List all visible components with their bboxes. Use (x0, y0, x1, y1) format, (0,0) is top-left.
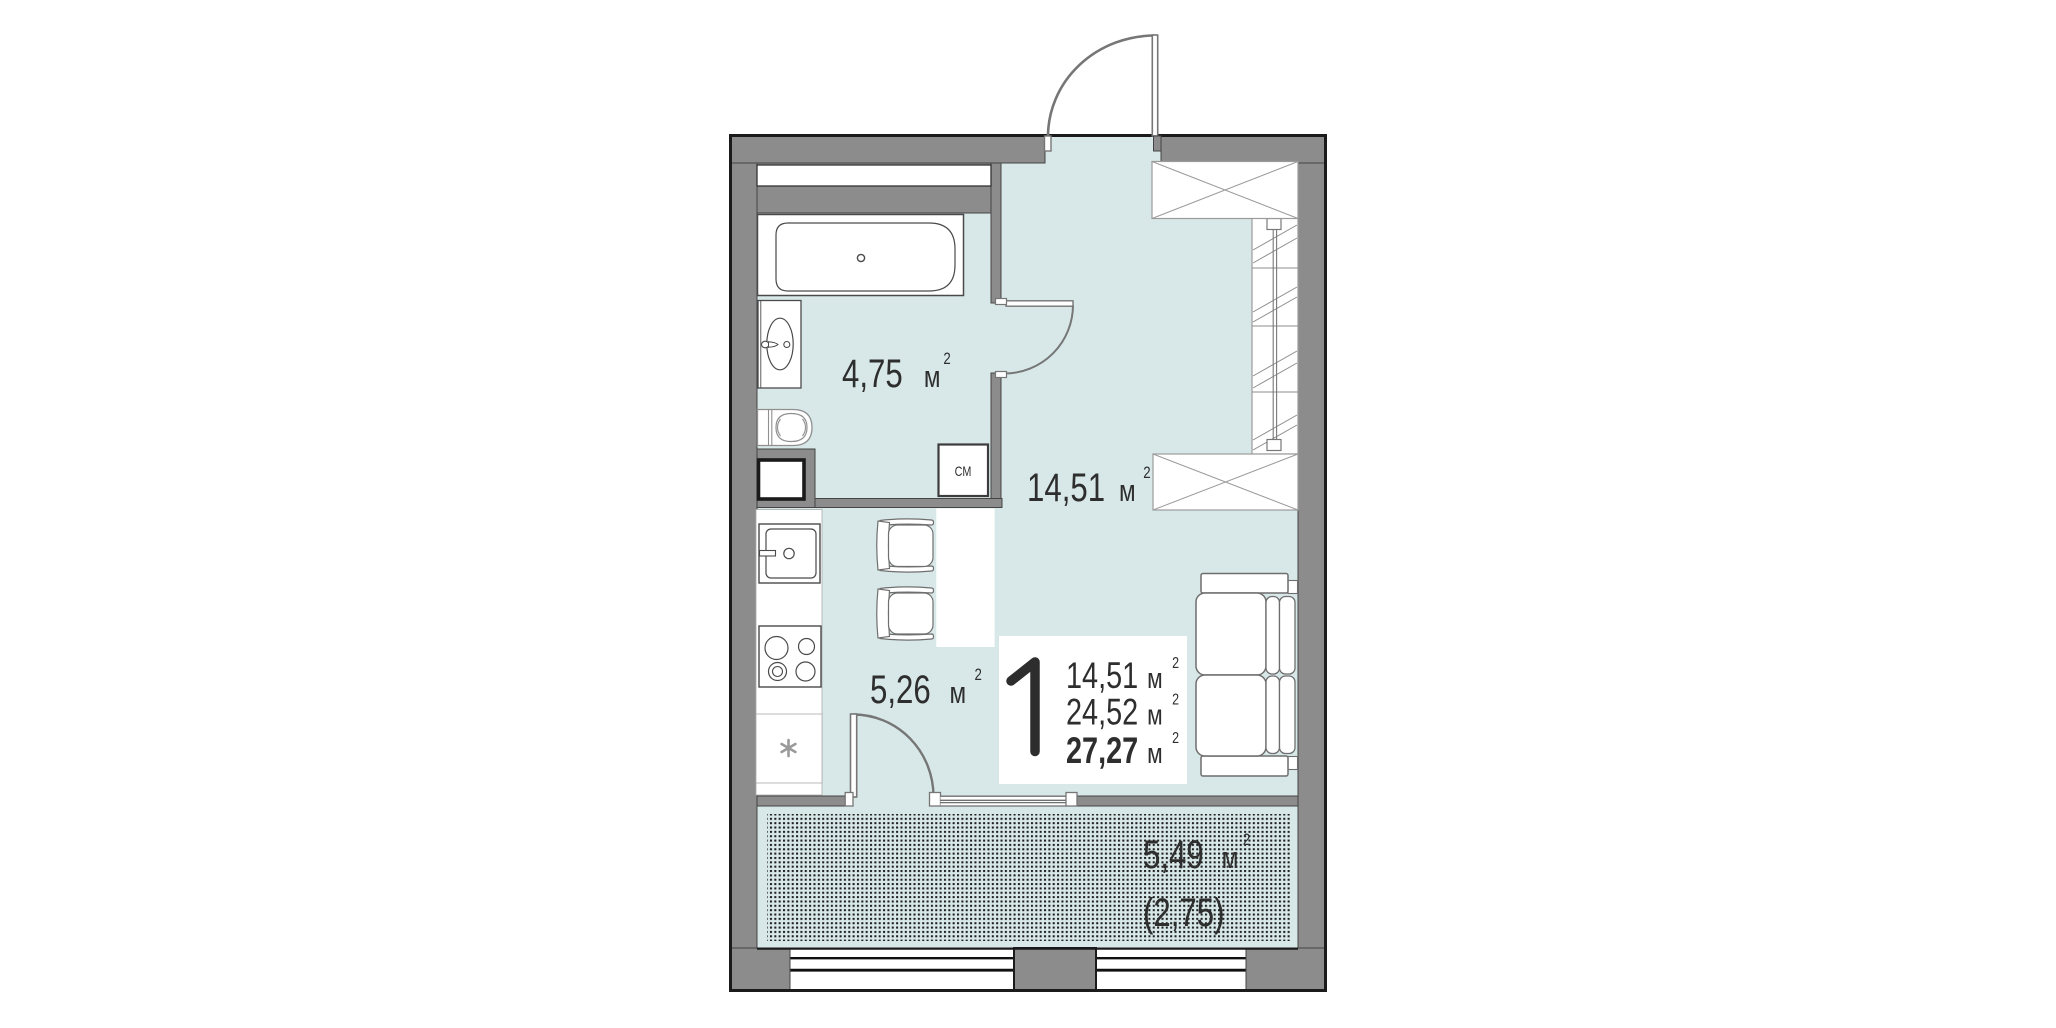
svg-text:СМ: СМ (955, 464, 972, 479)
svg-text:14,51м2: 14,51м2 (1066, 655, 1179, 697)
svg-text:(2,75): (2,75) (1143, 890, 1224, 935)
svg-text:27,27м2: 27,27м2 (1066, 730, 1179, 772)
svg-text:24,52м2: 24,52м2 (1066, 691, 1179, 733)
